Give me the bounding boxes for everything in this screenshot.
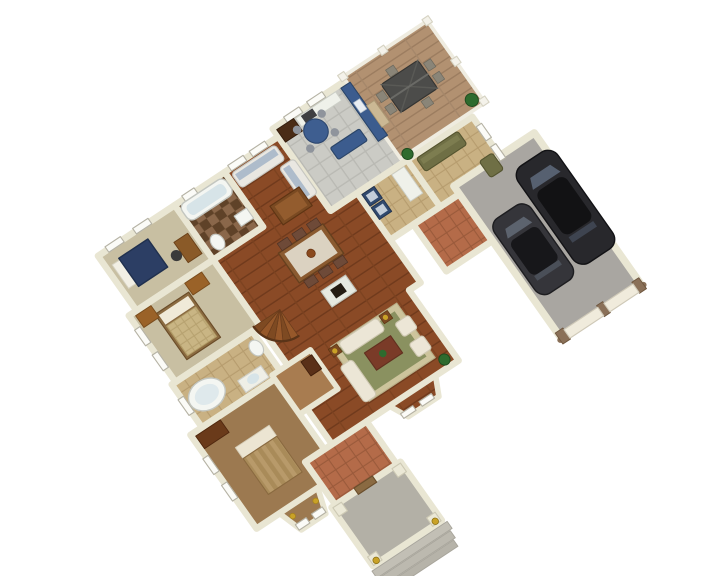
rotated-plan-group xyxy=(61,1,714,576)
floor-plan-page xyxy=(0,0,720,576)
floor-plan-3d-rendering xyxy=(0,0,720,576)
